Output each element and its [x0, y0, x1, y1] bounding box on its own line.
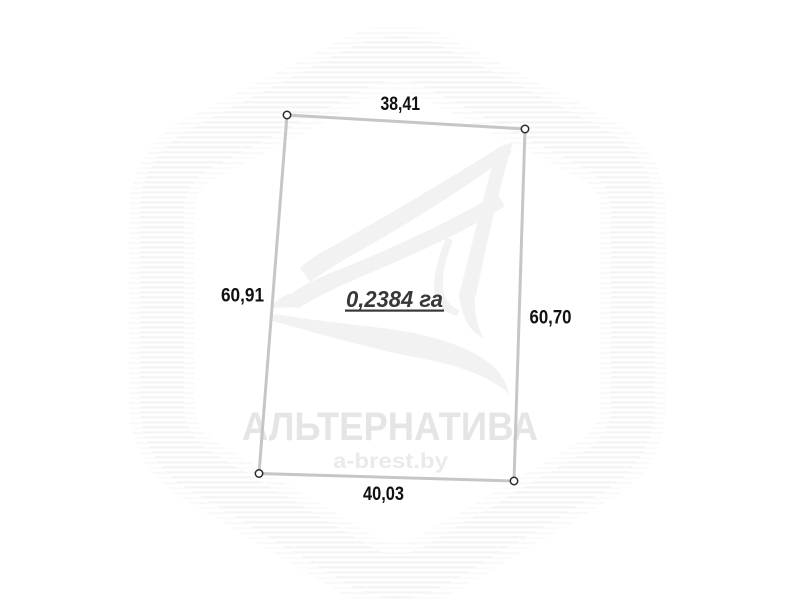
svg-text:60,70: 60,70	[530, 308, 572, 329]
svg-text:АЛЬТЕРНАТИВА: АЛЬТЕРНАТИВА	[242, 405, 538, 449]
svg-text:0,2384 га: 0,2384 га	[346, 286, 443, 312]
svg-text:40,03: 40,03	[363, 484, 404, 505]
svg-text:a-brest.by: a-brest.by	[333, 450, 448, 473]
svg-text:38,41: 38,41	[381, 94, 421, 115]
svg-text:60,91: 60,91	[221, 286, 264, 307]
